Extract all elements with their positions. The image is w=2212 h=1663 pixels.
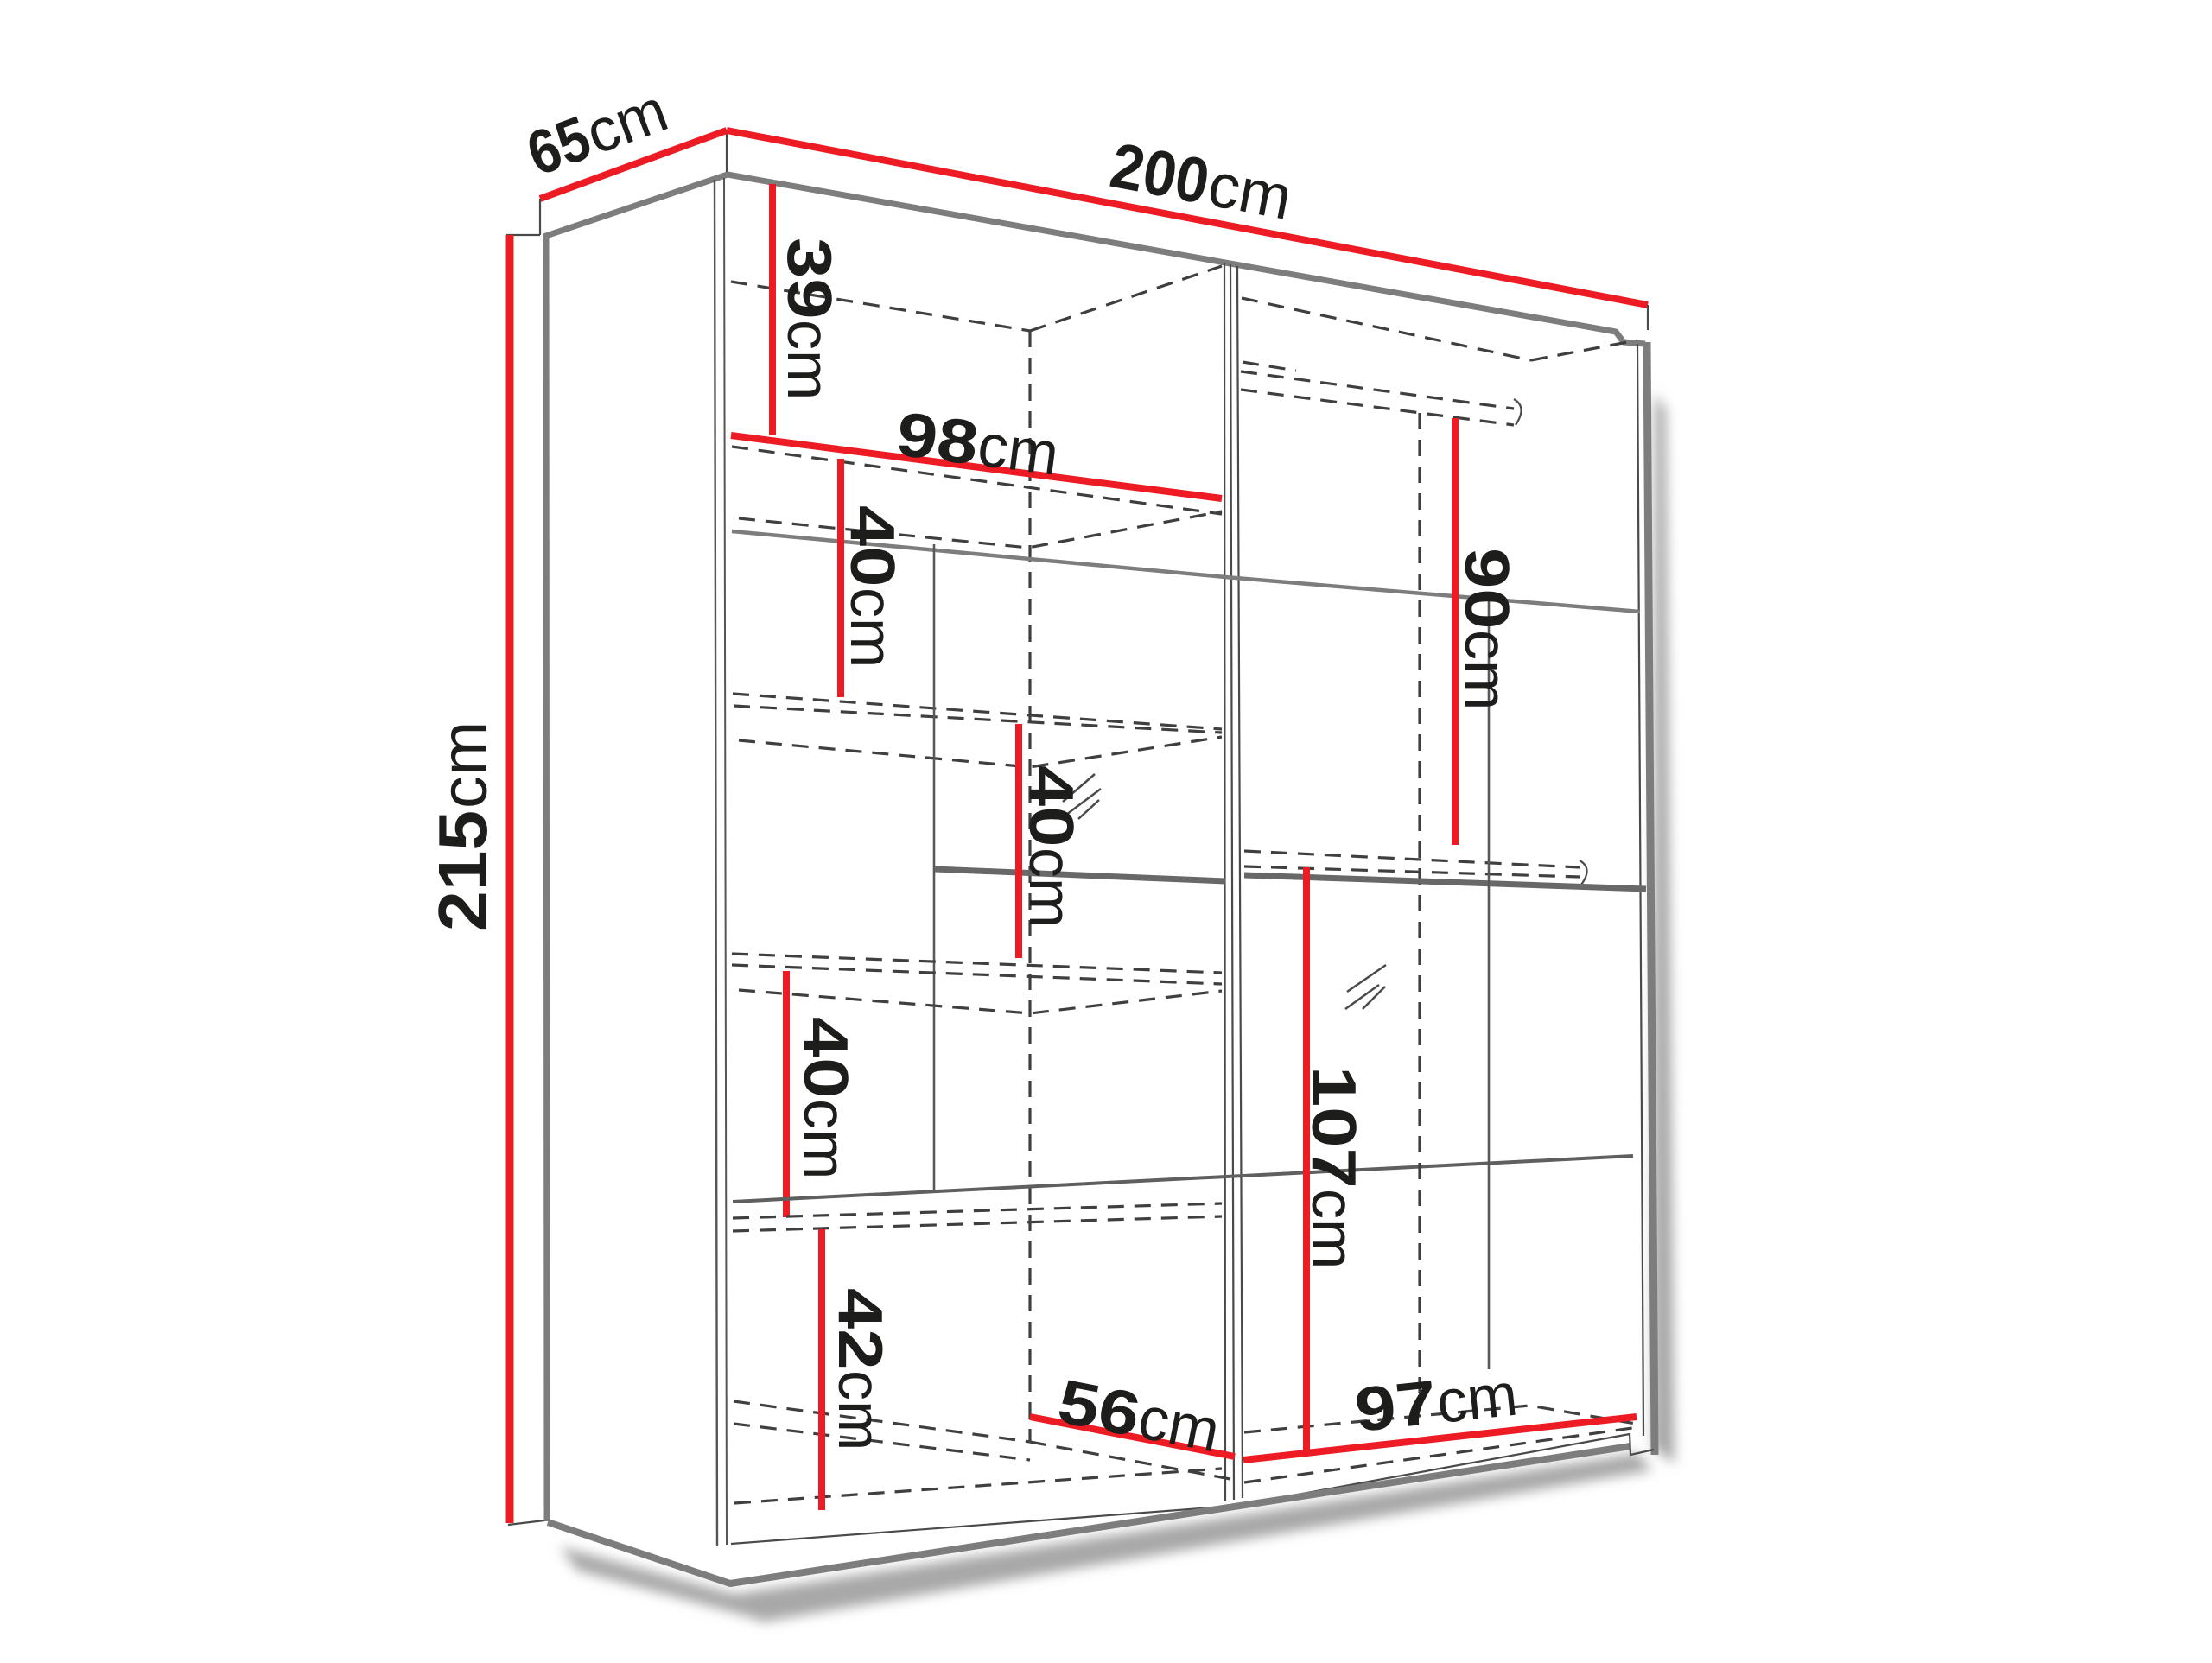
- svg-text:cm: cm: [775, 320, 842, 400]
- svg-text:cm: cm: [974, 411, 1062, 488]
- svg-text:cm: cm: [1017, 847, 1084, 928]
- svg-text:97: 97: [1351, 1368, 1440, 1445]
- svg-text:40: 40: [837, 505, 906, 587]
- svg-text:39: 39: [774, 238, 843, 319]
- svg-text:cm: cm: [1452, 630, 1520, 710]
- svg-text:cm: cm: [428, 721, 501, 809]
- svg-text:cm: cm: [826, 1370, 893, 1450]
- svg-text:cm: cm: [791, 1099, 859, 1179]
- svg-text:98: 98: [893, 399, 982, 479]
- svg-text:42: 42: [825, 1288, 894, 1369]
- svg-text:215: 215: [425, 810, 502, 931]
- svg-text:107: 107: [1299, 1066, 1368, 1189]
- svg-text:90: 90: [1452, 548, 1521, 629]
- svg-text:cm: cm: [1300, 1189, 1367, 1269]
- svg-text:40: 40: [1016, 765, 1085, 847]
- svg-text:40: 40: [791, 1017, 860, 1098]
- svg-text:cm: cm: [1433, 1361, 1521, 1436]
- svg-text:cm: cm: [838, 587, 906, 668]
